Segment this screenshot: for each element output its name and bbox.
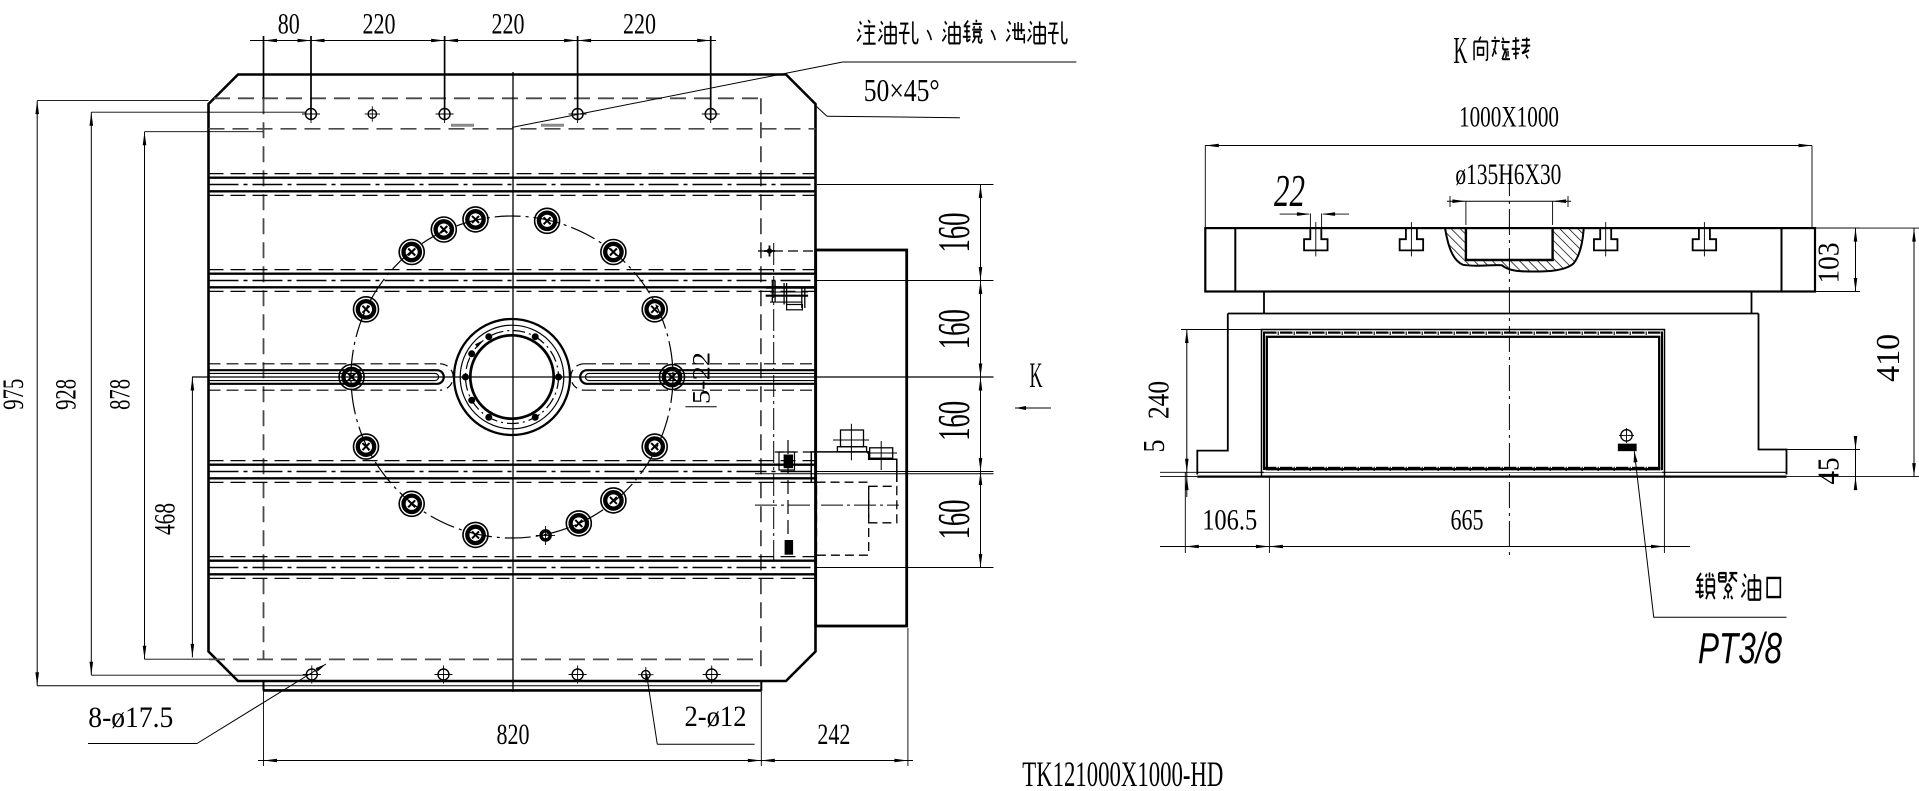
svg-text:975: 975 [0,379,30,410]
svg-text:220: 220 [623,8,656,41]
svg-text:468: 468 [148,503,181,535]
svg-text:878: 878 [104,379,137,410]
svg-text:928: 928 [50,379,83,410]
svg-text:K: K [1030,355,1043,395]
svg-text:TK121000X1000-HD: TK121000X1000-HD [1022,754,1223,791]
svg-text:106.5: 106.5 [1202,504,1257,537]
svg-text:5: 5 [1136,440,1171,453]
svg-text:1000X1000: 1000X1000 [1459,101,1559,134]
svg-text:410: 410 [1870,334,1907,382]
svg-text:240: 240 [1140,381,1175,419]
svg-text:8-ø17.5: 8-ø17.5 [88,701,173,734]
svg-text:220: 220 [492,8,525,41]
svg-text:242: 242 [817,718,850,751]
svg-text:160: 160 [929,500,979,540]
svg-text:2-ø12: 2-ø12 [685,700,747,733]
svg-text:80: 80 [278,8,300,41]
svg-text:45: 45 [1811,458,1846,485]
svg-text:22: 22 [1274,165,1305,216]
svg-text:5-22: 5-22 [688,352,715,404]
svg-text:665: 665 [1451,504,1484,537]
svg-text:103: 103 [1811,243,1846,284]
svg-text:K: K [1454,30,1468,72]
svg-text:220: 220 [363,8,396,41]
svg-text:820: 820 [497,718,530,751]
svg-text:50×45°: 50×45° [864,72,940,108]
svg-text:PT3/8: PT3/8 [1698,624,1782,673]
svg-text:160: 160 [929,213,979,253]
svg-text:160: 160 [929,309,979,349]
svg-text:160: 160 [929,401,979,441]
svg-text:ø135H6X30: ø135H6X30 [1455,158,1561,191]
